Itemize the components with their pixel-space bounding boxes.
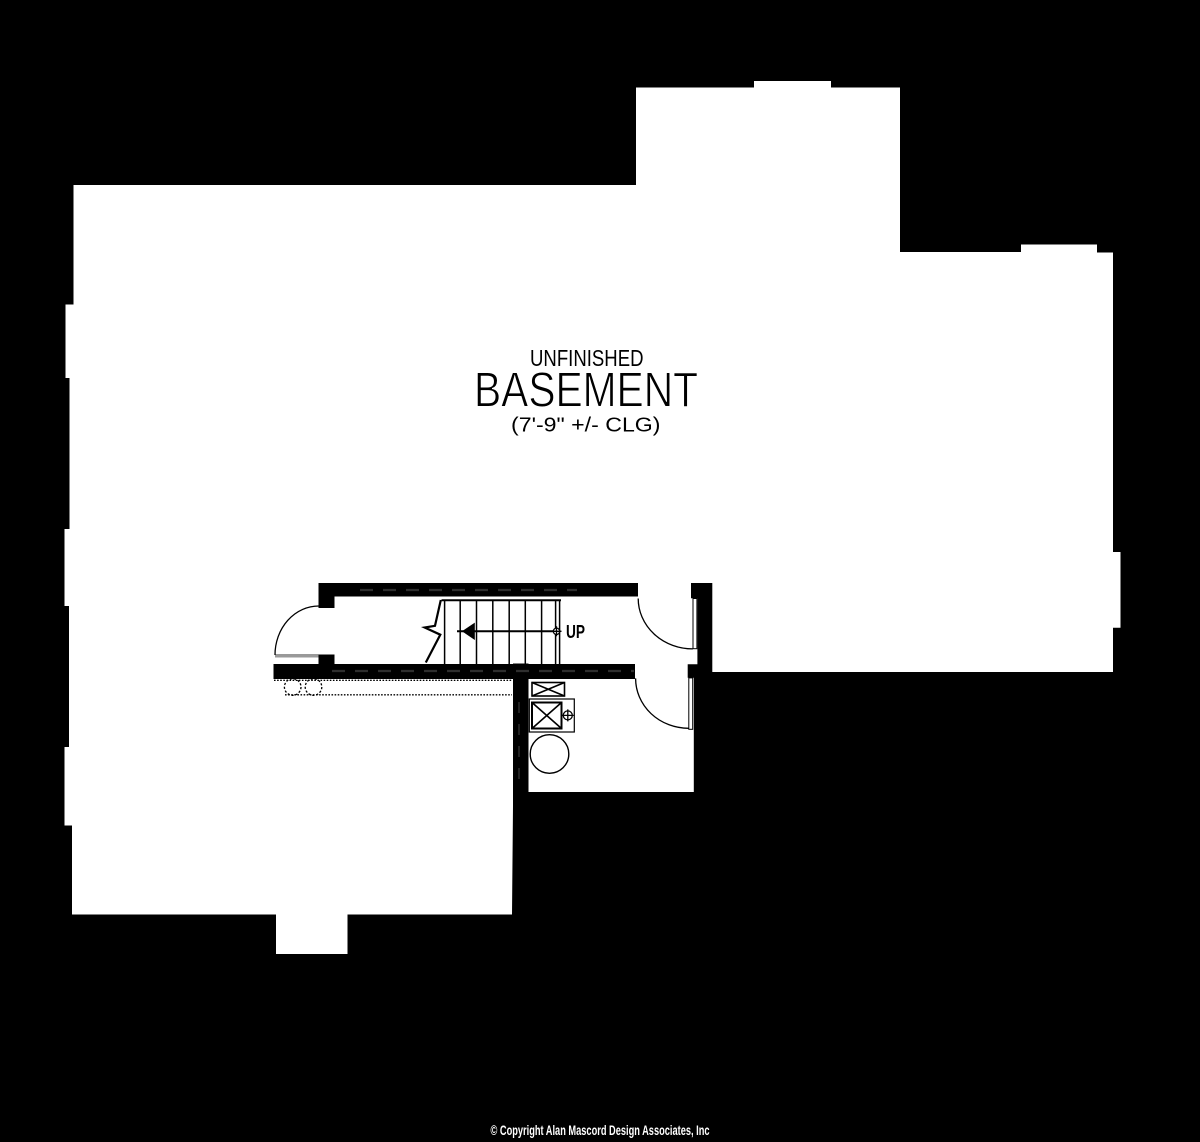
svg-text:© Copyright Alan Mascord Desig: © Copyright Alan Mascord Design Associat… — [491, 1123, 710, 1138]
svg-text:UP: UP — [566, 622, 585, 642]
svg-text:(7'-9" +/- CLG): (7'-9" +/- CLG) — [511, 414, 661, 437]
svg-text:BASEMENT: BASEMENT — [474, 363, 698, 418]
